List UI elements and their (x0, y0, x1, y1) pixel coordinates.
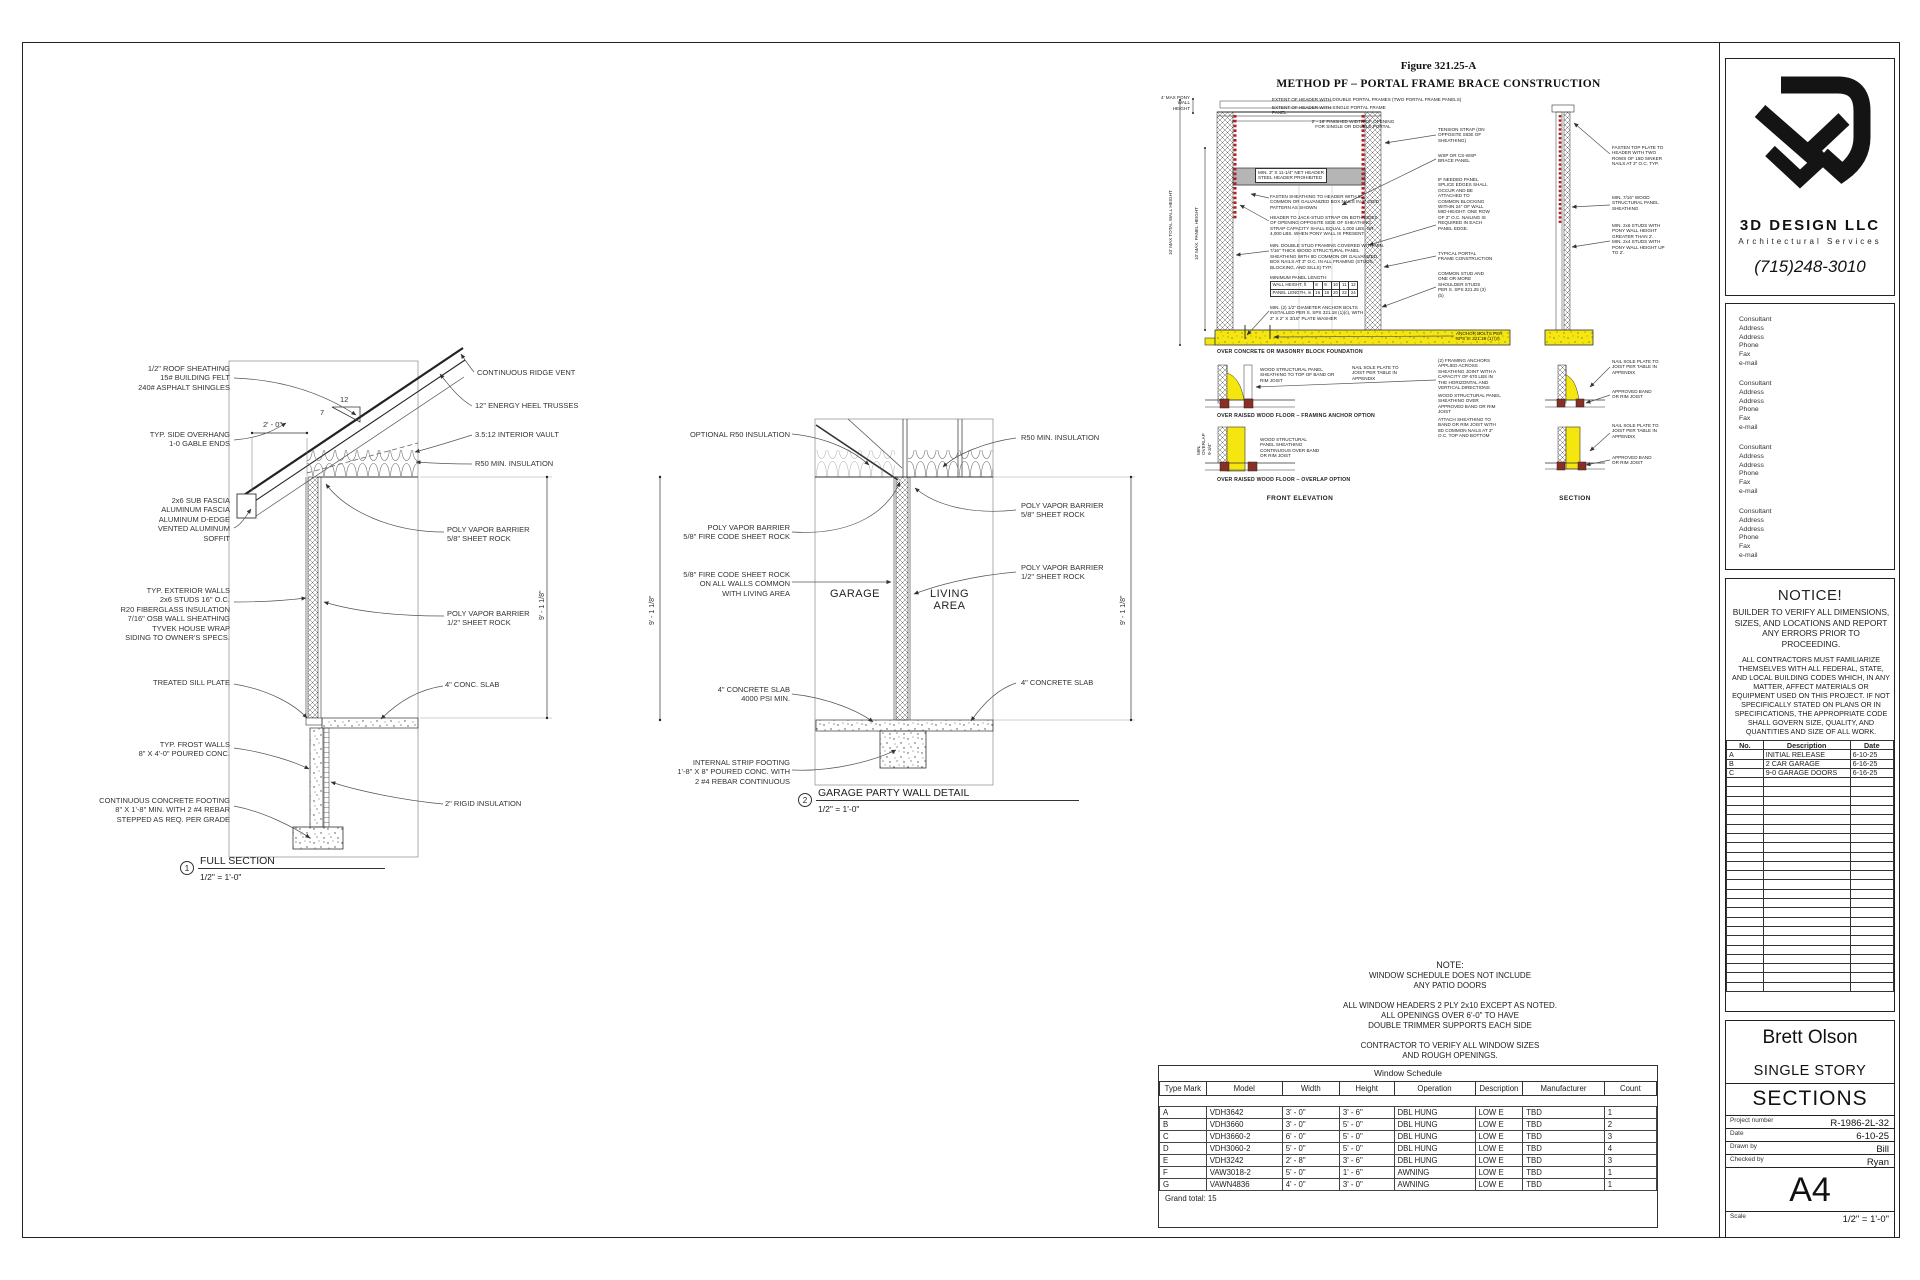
callout-poly-58-r: POLY VAPOR BARRIER 5/8" SHEET ROCK (1021, 501, 1104, 520)
portal-min-panel-length: MINIMUM PANEL LENGTH (1270, 275, 1385, 280)
table-row (1727, 843, 1894, 852)
callout-poly-58-fc: POLY VAPOR BARRIER 5/8" FIRE CODE SHEET … (683, 523, 790, 542)
revision-table: No. Description Date A INITIAL RELEASE 6… (1726, 740, 1894, 992)
ws-col-operation: Operation (1394, 1081, 1475, 1095)
party-wall-detail: OPTIONAL R50 INSULATION POLY VAPOR BARRI… (640, 330, 1200, 840)
ws-spacer (1160, 1095, 1657, 1106)
callout-strip-footing: INTERNAL STRIP FOOTING 1'-8" X 8" POURED… (677, 758, 790, 786)
portal-dim-panel-height: 10' MAX. PANEL HEIGHT (1194, 180, 1199, 260)
table-row (1727, 945, 1894, 954)
callout-58-fc-common: 5/8" FIRE CODE SHEET ROCK ON ALL WALLS C… (683, 570, 790, 598)
table-row (1727, 778, 1894, 787)
pt-cell: 16 (1313, 289, 1322, 297)
field-label: Date (1730, 1130, 1744, 1137)
company-name: 3D DESIGN LLC (1726, 217, 1894, 234)
field-project-number: Project number R-1986-2L-32 (1726, 1116, 1894, 1129)
ws-grand-total: Grand total: 15 (1165, 1194, 1217, 1203)
ws-col-count: Count (1604, 1081, 1656, 1095)
figure-title: METHOD PF – PORTAL FRAME BRACE CONSTRUCT… (1160, 78, 1717, 90)
field-value: 6-10-25 (1856, 1131, 1889, 1142)
detail-number-1: 1 (180, 861, 194, 875)
ws-cell: 1 (1604, 1106, 1656, 1118)
table-row (1727, 964, 1894, 973)
ws-cell: 4' - 0" (1282, 1178, 1339, 1190)
ws-cell: 3' - 6" (1339, 1106, 1394, 1118)
table-row: C 9-0 GARAGE DOORS 6-16-25 (1727, 768, 1894, 777)
ws-cell: VDH3060-2 (1206, 1142, 1282, 1154)
table-row (1727, 852, 1894, 861)
ws-cell: E (1160, 1154, 1207, 1166)
ws-cell: B (1160, 1118, 1207, 1130)
sheet-title: SECTIONS (1726, 1087, 1894, 1111)
portal-caption-overlap: OVER RAISED WOOD FLOOR – OVERLAP OPTION (1217, 477, 1350, 483)
ws-cell: DBL HUNG (1394, 1118, 1475, 1130)
rev-col-no: No. (1727, 741, 1764, 750)
ws-cell: 2' - 8" (1282, 1154, 1339, 1166)
logo-box: 3D DESIGN LLC Architectural Services (71… (1725, 58, 1895, 296)
dim-overhang: 2' - 0" (263, 420, 282, 429)
rev-cell: 9-0 GARAGE DOORS (1763, 768, 1850, 777)
rev-col-description: Description (1763, 741, 1850, 750)
ws-cell: 3' - 6" (1339, 1154, 1394, 1166)
field-label: Scale (1730, 1213, 1746, 1220)
pt-cell: 10 (1331, 282, 1340, 290)
callout-energy-heel: 12" ENERGY HEEL TRUSSES (475, 401, 578, 410)
table-row (1727, 899, 1894, 908)
callout-optional-r50: OPTIONAL R50 INSULATION (690, 430, 790, 439)
notice-title: NOTICE! (1726, 587, 1894, 604)
ws-cell: A (1160, 1106, 1207, 1118)
callout-conc-slab-r: 4" CONCRETE SLAB (1021, 678, 1093, 687)
pt-cell: 22 (1340, 289, 1349, 297)
table-row (1727, 806, 1894, 815)
callout-roof-sheathing: 1/2" ROOF SHEATHING 15# BUILDING FELT 24… (138, 364, 230, 392)
table-row (1727, 973, 1894, 982)
ws-cell: 5' - 0" (1339, 1130, 1394, 1142)
window-schedule-table: Window Schedule Type Mark Model Width He… (1159, 1066, 1657, 1191)
ws-cell: LOW E (1475, 1118, 1523, 1130)
portal-min-wsp: MIN. 7/16" WOOD STRUCTURAL PANEL SHEATHI… (1612, 195, 1674, 211)
portal-panel-table: WALL HEIGHT, ft 8 9 10 11 12 PANEL LENGT… (1270, 281, 1358, 297)
portal-framing-anchors: (2) FRAMING ANCHORS APPLIED ACROSS SHEAT… (1438, 358, 1510, 390)
portal-extent-double: EXTENT OF HEADER WITH DOUBLE PORTAL FRAM… (1272, 97, 1482, 102)
callout-poly-58: POLY VAPOR BARRIER 5/8" SHEET ROCK (447, 525, 530, 544)
portal-caption-framing-anchor: OVER RAISED WOOD FLOOR – FRAMING ANCHOR … (1217, 413, 1375, 419)
rev-cell: INITIAL RELEASE (1763, 750, 1850, 759)
ws-cell: VDH3242 (1206, 1154, 1282, 1166)
table-row (1727, 787, 1894, 796)
callout-sill-plate: TREATED SILL PLATE (153, 678, 230, 687)
pt-cell: WALL HEIGHT, ft (1271, 282, 1314, 290)
field-value: R-1986-2L-32 (1830, 1118, 1889, 1129)
table-row: CVDH3660-26' - 0"5' - 0"DBL HUNGLOW ETBD… (1160, 1130, 1657, 1142)
ws-cell: LOW E (1475, 1166, 1523, 1178)
ws-cell: 6' - 0" (1282, 1130, 1339, 1142)
callout-frost-walls: TYP. FROST WALLS 8" X 4'-0" POURED CONC. (139, 740, 230, 759)
room-label-living: LIVING AREA (922, 588, 977, 612)
table-row (1727, 815, 1894, 824)
consultant-block: Consultant Address Address Phone Fax e-m… (1739, 444, 1772, 497)
pt-cell: 20 (1331, 289, 1340, 297)
rev-cell: B (1727, 759, 1764, 768)
room-label-garage: GARAGE (825, 588, 885, 600)
sheet-number: A4 (1726, 1171, 1894, 1210)
ws-cell: 3' - 0" (1282, 1106, 1339, 1118)
field-value: 1/2" = 1'-0" (1843, 1214, 1889, 1225)
detail-scale-1: 1/2" = 1'-0" (200, 872, 241, 882)
rev-cell: 6-16-25 (1850, 768, 1893, 777)
callout-side-overhang: TYP. SIDE OVERHANG 1-0 GABLE ENDS (150, 430, 230, 449)
rev-cell: 2 CAR GARAGE (1763, 759, 1850, 768)
portal-approved-band-2: APPROVED BAND OR RIM JOIST (1612, 455, 1670, 466)
consultant-block: Consultant Address Address Phone Fax e-m… (1739, 316, 1772, 369)
portal-extent-single: EXTENT OF HEADER WITH SINGLE PORTAL FRAM… (1272, 105, 1482, 116)
ws-cell: 5' - 0" (1282, 1166, 1339, 1178)
ws-cell: LOW E (1475, 1178, 1523, 1190)
ws-cell: 5' - 0" (1339, 1142, 1394, 1154)
table-row (1727, 926, 1894, 935)
ws-cell: LOW E (1475, 1130, 1523, 1142)
window-schedule-title: Window Schedule (1160, 1066, 1657, 1081)
ws-cell: 1 (1604, 1166, 1656, 1178)
ws-cell: D (1160, 1142, 1207, 1154)
ws-cell: 5' - 0" (1282, 1142, 1339, 1154)
ws-cell: VDH3642 (1206, 1106, 1282, 1118)
ws-cell: 2 (1604, 1118, 1656, 1130)
pt-cell: 9 (1322, 282, 1331, 290)
ws-cell: LOW E (1475, 1154, 1523, 1166)
ws-col-height: Height (1339, 1081, 1394, 1095)
rev-cell: A (1727, 750, 1764, 759)
portal-fasten-top-plate: FASTEN TOP PLATE TO HEADER WITH TWO ROWS… (1612, 145, 1678, 167)
table-row: B 2 CAR GARAGE 6-16-25 (1727, 759, 1894, 768)
rev-cell: C (1727, 768, 1764, 777)
ws-cell: VAW3018-2 (1206, 1166, 1282, 1178)
portal-front-elevation-label: FRONT ELEVATION (1220, 495, 1380, 502)
table-row (1727, 954, 1894, 963)
ws-cell: VDH3660-2 (1206, 1130, 1282, 1142)
portal-double-stud: MIN. DOUBLE STUD FRAMING COVERED WITH MI… (1270, 243, 1388, 270)
ws-cell: 3' - 0" (1339, 1178, 1394, 1190)
field-label: Project number (1730, 1117, 1773, 1124)
callout-r50-insulation: R50 MIN. INSULATION (475, 459, 553, 468)
portal-panel-splice: IF NEEDED PANEL SPLICE EDGES SHALL OCCUR… (1438, 177, 1500, 231)
table-row (1727, 908, 1894, 917)
ws-cell: 5' - 0" (1339, 1118, 1394, 1130)
ws-cell: TBD (1523, 1178, 1605, 1190)
field-scale: Scale 1/2" = 1'-0" (1726, 1212, 1894, 1225)
pt-cell: 24 (1349, 289, 1358, 297)
ws-cell: 4 (1604, 1142, 1656, 1154)
callout-poly-12: POLY VAPOR BARRIER 1/2" SHEET ROCK (447, 609, 530, 628)
table-row (1727, 889, 1894, 898)
callout-concrete-footing: CONTINUOUS CONCRETE FOOTING 8" X 1'-8" M… (99, 796, 230, 824)
company-logo-icon (1726, 67, 1896, 217)
dim-left-height: 9' - 1 1/8" (649, 595, 656, 625)
portal-wsp-continuous: WOOD STRUCTURAL PANEL SHEATHING CONTINUO… (1260, 437, 1332, 459)
company-phone: (715)248-3010 (1726, 257, 1894, 277)
titleblock-info-box: Brett Olson SINGLE STORY SECTIONS Projec… (1725, 1020, 1895, 1238)
note-title: NOTE: (1250, 960, 1650, 970)
notice-paragraph-1: BUILDER TO VERIFY ALL DIMENSIONS, SIZES,… (1732, 607, 1890, 649)
ws-col-description: Description (1475, 1081, 1523, 1095)
company-tagline: Architectural Services (1726, 237, 1894, 246)
field-drawn-by: Drawn by Bill (1726, 1142, 1894, 1155)
portal-attach-sheathing: ATTACH SHEATHING TO BAND OR RIM JOIST WI… (1438, 417, 1510, 439)
portal-net-header: MIN. 3" X 11-1/4" NET HEADER STEEL HEADE… (1255, 168, 1327, 183)
portal-anchor-bolts-note: MIN. (2) 1/2" DIAMETER ANCHOR BOLTS INST… (1270, 305, 1382, 321)
table-row: EVDH32422' - 8"3' - 6"DBL HUNGLOW ETBD3 (1160, 1154, 1657, 1166)
portal-dim-total-height: 10' MAX TOTAL WALL HEIGHT (1168, 175, 1173, 255)
ws-cell: TBD (1523, 1166, 1605, 1178)
detail-scale-2: 1/2" = 1'-0" (818, 804, 859, 814)
table-row (1727, 796, 1894, 805)
project-name: SINGLE STORY (1726, 1063, 1894, 1079)
ws-cell: 3' - 0" (1282, 1118, 1339, 1130)
figure-number: Figure 321.25-A (1160, 60, 1717, 72)
portal-dim-pony: 4' MAX PONY WALL HEIGHT (1160, 95, 1190, 111)
ws-cell: LOW E (1475, 1142, 1523, 1154)
ws-cell: LOW E (1475, 1106, 1523, 1118)
client-name: Brett Olson (1726, 1027, 1894, 1049)
rev-col-date: Date (1850, 741, 1893, 750)
dim-wall-height: 9' - 1 1/8" (539, 590, 546, 620)
ws-cell: DBL HUNG (1394, 1142, 1475, 1154)
callout-poly-12-r: POLY VAPOR BARRIER 1/2" SHEET ROCK (1021, 563, 1104, 582)
callout-sub-fascia: 2x6 SUB FASCIA ALUMINUM FASCIA ALUMINUM … (158, 496, 230, 543)
portal-nail-sole-2: NAIL SOLE PLATE TO JOIST PER TABLE IN AP… (1612, 359, 1674, 375)
ws-cell: AWNING (1394, 1178, 1475, 1190)
callout-slab-4000psi: 4" CONCRETE SLAB 4000 PSI MIN. (718, 685, 790, 704)
field-date: Date 6-10-25 (1726, 1129, 1894, 1142)
ws-cell: TBD (1523, 1142, 1605, 1154)
field-value: Ryan (1867, 1157, 1889, 1168)
table-row (1727, 936, 1894, 945)
field-label: Drawn by (1730, 1143, 1757, 1150)
portal-typical-frame: TYPICAL PORTAL FRAME CONSTRUCTION (1438, 251, 1504, 262)
table-row: FVAW3018-25' - 0"1' - 6"AWNINGLOW ETBD1 (1160, 1166, 1657, 1178)
portal-approved-band-1: APPROVED BAND OR RIM JOIST (1612, 389, 1670, 400)
portal-wsp-panel: WSP OR CS-WSP BRACE PANEL (1438, 153, 1500, 164)
ws-cell: 3 (1604, 1154, 1656, 1166)
consultant-block: Consultant Address Address Phone Fax e-m… (1739, 380, 1772, 433)
portal-pony-studs: MIN. 2x6 STUDS WITH PONY WALL HEIGHT GRE… (1612, 223, 1678, 255)
callout-interior-vault: 3.5:12 INTERIOR VAULT (475, 430, 559, 439)
table-row: DVDH3060-25' - 0"5' - 0"DBL HUNGLOW ETBD… (1160, 1142, 1657, 1154)
field-label: Checked by (1730, 1156, 1764, 1163)
pt-cell: 18 (1322, 289, 1331, 297)
portal-nail-sole-1: NAIL SOLE PLATE TO JOIST PER TABLE IN AP… (1352, 365, 1414, 381)
callout-ridge-vent: CONTINUOUS RIDGE VENT (477, 368, 575, 377)
ws-cell: 1' - 6" (1339, 1166, 1394, 1178)
table-row (1727, 824, 1894, 833)
portal-min-overlap: MIN. OVERLAP 9-3/4" (1196, 421, 1212, 455)
callout-rigid-insulation: 2" RIGID INSULATION (445, 799, 521, 808)
dim-slope-run: 7 (320, 408, 324, 417)
ws-col-width: Width (1282, 1081, 1339, 1095)
ws-cell: DBL HUNG (1394, 1154, 1475, 1166)
ws-col-model: Model (1206, 1081, 1282, 1095)
detail-number-2: 2 (798, 793, 812, 807)
notice-paragraph-2: ALL CONTRACTORS MUST FAMILIARIZE THEMSEL… (1732, 655, 1890, 736)
ws-cell: G (1160, 1178, 1207, 1190)
detail-title-1: FULL SECTION (198, 855, 385, 869)
table-row: AVDH36423' - 0"3' - 6"DBL HUNGLOW ETBD1 (1160, 1106, 1657, 1118)
ws-col-manufacturer: Manufacturer (1523, 1081, 1605, 1095)
table-row (1727, 880, 1894, 889)
notice-box: NOTICE! BUILDER TO VERIFY ALL DIMENSIONS… (1725, 578, 1895, 1012)
portal-section-label: SECTION (1520, 495, 1630, 502)
rev-cell: 6-16-25 (1850, 759, 1893, 768)
ws-cell: 3 (1604, 1130, 1656, 1142)
callout-conc-slab: 4" CONC. SLAB (445, 680, 499, 689)
dim-slope-rise: 12 (340, 395, 348, 404)
pt-cell: PANEL LENGTH, in (1271, 289, 1314, 297)
portal-wsp-over-band: WOOD STRUCTURAL PANEL SHEATHING OVER APP… (1438, 393, 1514, 415)
dim-right-height: 9' - 1 1/8" (1120, 595, 1127, 625)
portal-jack-stud-strap: HEADER TO JACK-STUD STRAP ON BOTH SIDES … (1270, 215, 1385, 237)
ws-col-type: Type Mark (1160, 1081, 1207, 1095)
table-row: GVAWN48364' - 0"3' - 0"AWNINGLOW ETBD1 (1160, 1178, 1657, 1190)
portal-fasten-sheathing: FASTEN SHEATHING TO HEADER WITH 8D COMMO… (1270, 194, 1385, 210)
callout-r50-min: R50 MIN. INSULATION (1021, 433, 1099, 442)
ws-cell: VAWN4836 (1206, 1178, 1282, 1190)
ws-cell: DBL HUNG (1394, 1130, 1475, 1142)
portal-tension-strap: TENSION STRAP (ON OPPOSITE SIDE OF SHEAT… (1438, 127, 1500, 143)
portal-common-stud: COMMON STUD AND ONE OR MORE SHOULDER STU… (1438, 271, 1500, 298)
detail-title-2: GARAGE PARTY WALL DETAIL (816, 787, 1079, 801)
portal-anchor-bolts: ANCHOR BOLTS PER SPS S. 321.18 (1) (c) (1456, 331, 1518, 342)
window-schedule: Window Schedule Type Mark Model Width He… (1158, 1065, 1658, 1228)
table-row (1727, 982, 1894, 991)
ws-cell: TBD (1523, 1154, 1605, 1166)
pt-cell: 12 (1349, 282, 1358, 290)
portal-frame-figure: Figure 321.25-A METHOD PF – PORTAL FRAME… (1160, 55, 1717, 515)
field-checked-by: Checked by Ryan (1726, 1155, 1894, 1168)
table-row (1727, 871, 1894, 880)
table-row (1727, 861, 1894, 870)
ws-cell: AWNING (1394, 1166, 1475, 1178)
titleblock-divider (1719, 42, 1720, 1238)
pt-cell: 11 (1340, 282, 1349, 290)
rev-cell: 6-10-25 (1850, 750, 1893, 759)
ws-cell: DBL HUNG (1394, 1106, 1475, 1118)
ws-cell: TBD (1523, 1130, 1605, 1142)
ws-cell: 1 (1604, 1178, 1656, 1190)
table-row: BVDH36603' - 0"5' - 0"DBL HUNGLOW ETBD2 (1160, 1118, 1657, 1130)
ws-cell: F (1160, 1166, 1207, 1178)
portal-nail-sole-3: NAIL SOLE PLATE TO JOIST PER TABLE IN AP… (1612, 423, 1674, 439)
ws-cell: VDH3660 (1206, 1118, 1282, 1130)
consultants-box: Consultant Address Address Phone Fax e-m… (1725, 303, 1895, 570)
full-section-detail: 1/2" ROOF SHEATHING 15# BUILDING FELT 24… (60, 280, 580, 900)
table-row: A INITIAL RELEASE 6-10-25 (1727, 750, 1894, 759)
ws-cell: TBD (1523, 1118, 1605, 1130)
callout-exterior-walls: TYP. EXTERIOR WALLS 2x6 STUDS 16" O.C. R… (121, 586, 230, 642)
table-row (1727, 917, 1894, 926)
ws-cell: TBD (1523, 1106, 1605, 1118)
portal-caption-concrete: OVER CONCRETE OR MASONRY BLOCK FOUNDATIO… (1217, 349, 1363, 355)
consultant-block: Consultant Address Address Phone Fax e-m… (1739, 508, 1772, 561)
note-body: WINDOW SCHEDULE DOES NOT INCLUDE ANY PAT… (1250, 971, 1650, 1061)
ws-cell: C (1160, 1130, 1207, 1142)
table-row (1727, 833, 1894, 842)
pt-cell: 8 (1313, 282, 1322, 290)
portal-wsp-top-band: WOOD STRUCTURAL PANEL SHEATHING TO TOP O… (1260, 367, 1346, 383)
field-value: Bill (1876, 1144, 1889, 1155)
portal-opening-width: 2' - 18' FINISHED WIDTH OF OPENING FOR S… (1288, 119, 1418, 130)
